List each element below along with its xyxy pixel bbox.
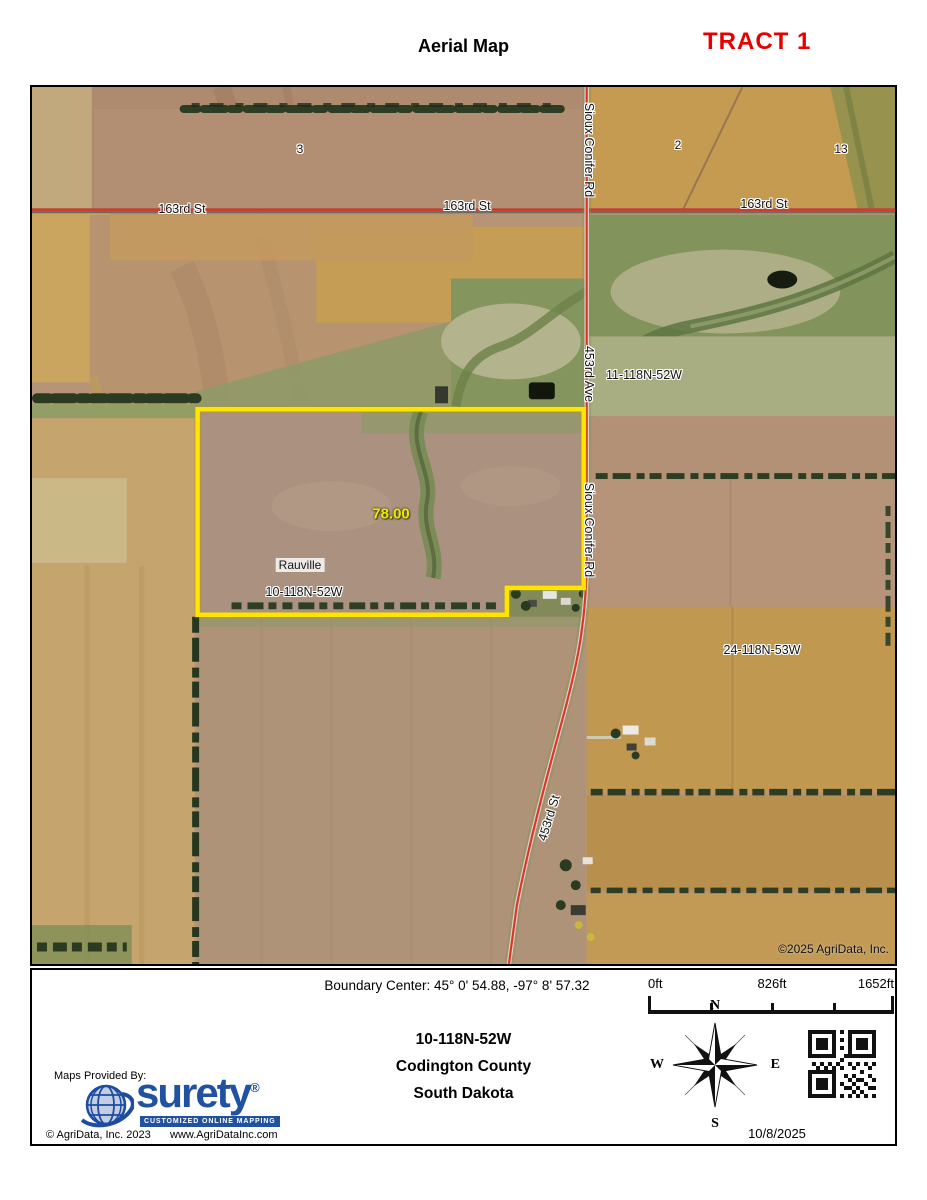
scale-tick-mid: 826ft: [758, 976, 787, 991]
street-label-163rd-east: 163rd St: [740, 197, 787, 211]
registered-mark: ®: [250, 1080, 260, 1095]
compass-east-label: E: [771, 1057, 780, 1073]
scale-tick-0: 0ft: [648, 976, 662, 991]
tract-acreage-label: 78.00: [372, 506, 410, 523]
provider-block: Maps Provided By: surety® CUSTOMIZED ONL…: [32, 970, 312, 1144]
surety-wordmark: surety: [136, 1069, 250, 1116]
compass-star: [660, 1010, 770, 1120]
tract-label: TRACT 1: [703, 28, 811, 56]
street-label-163rd-west: 163rd St: [158, 202, 205, 216]
scale-tick-mark: [891, 996, 894, 1010]
aerial-map: 163rd St 163rd St 163rd St Sioux Conifer…: [30, 85, 897, 966]
street-label-sioux-conifer-mid: Sioux Conifer Rd: [582, 483, 596, 578]
compass-rose-icon: N E S W: [650, 1000, 780, 1130]
map-copyright: ©2025 AgriData, Inc.: [778, 942, 889, 956]
provider-website: www.AgriDataInc.com: [170, 1129, 278, 1141]
street-label-163rd-mid: 163rd St: [443, 199, 490, 213]
section-number-2: 2: [675, 138, 682, 152]
township-label-10-118N-52W: 10-118N-52W: [266, 585, 343, 599]
compass-south-label: S: [711, 1116, 719, 1132]
aerial-map-page: Aerial Map TRACT 1: [0, 0, 927, 1200]
township-label-24-118N-53W: 24-118N-53W: [724, 643, 801, 657]
compass-west-label: W: [650, 1057, 664, 1073]
aerial-imagery: [32, 87, 895, 964]
surety-brand: surety®: [136, 1072, 260, 1114]
compass-north-label: N: [710, 998, 720, 1014]
surety-tagline: CUSTOMIZED ONLINE MAPPING: [140, 1116, 280, 1127]
place-label-rauville: Rauville: [276, 558, 325, 572]
provider-copyright: © AgriData, Inc. 2023: [46, 1129, 151, 1141]
qr-code: [807, 1029, 877, 1099]
township-label-11-118N-52W: 11-118N-52W: [606, 368, 682, 382]
section-number-13: 13: [834, 142, 847, 156]
scale-tick-mark: [833, 1003, 836, 1010]
section-number-3: 3: [297, 142, 304, 156]
street-label-sioux-conifer-north: Sioux Conifer Rd: [582, 103, 596, 198]
surety-globe-icon: [80, 1080, 134, 1132]
scale-tick-end: 1652ft: [858, 976, 894, 991]
street-label-453rd-ave: 453rd Ave: [582, 346, 596, 402]
info-panel: Boundary Center: 45° 0' 54.88, -97° 8' 5…: [30, 968, 897, 1146]
map-date: 10/8/2025: [727, 1126, 827, 1141]
